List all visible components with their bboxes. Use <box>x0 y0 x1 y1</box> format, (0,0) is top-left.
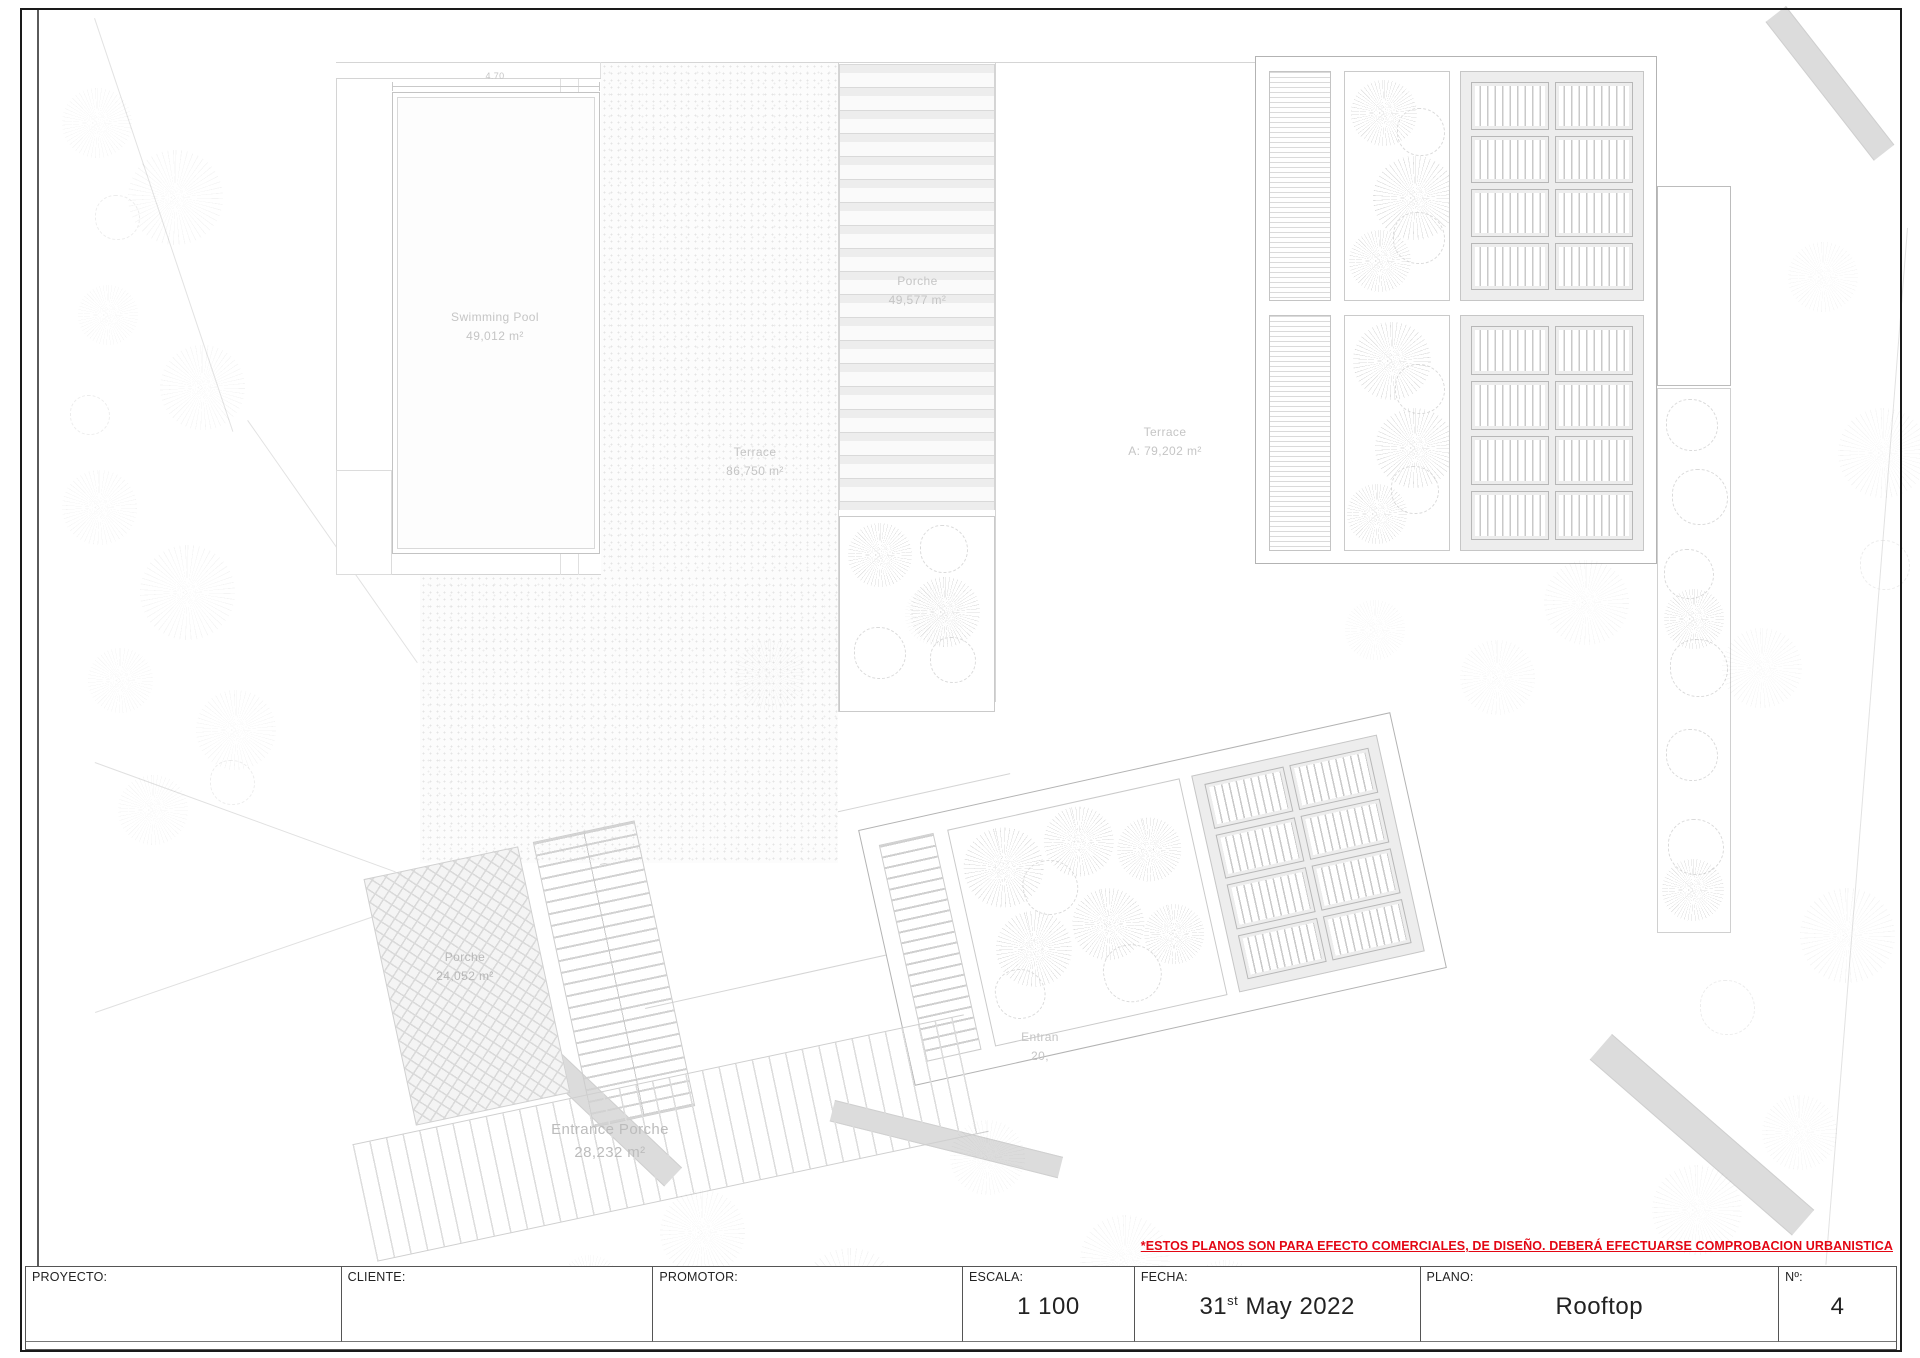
fecha-value: 31st May 2022 <box>1135 1293 1420 1321</box>
proyecto-label: PROYECTO: <box>32 1270 107 1284</box>
cliente-label: CLIENTE: <box>348 1270 406 1284</box>
titleblock-cell-plano: PLANO: Rooftop <box>1421 1267 1780 1342</box>
porche-entry-label: Porche24,052 m² <box>385 948 545 985</box>
terrace-a-label: TerraceA: 79,202 m² <box>1080 423 1250 460</box>
titleblock-cell-numero: Nº: 4 <box>1779 1267 1896 1342</box>
sheet-inner-border <box>37 10 39 1266</box>
entrance-partial-label: Entran20, <box>1005 1028 1075 1065</box>
swimming-pool-label: Swimming Pool49,012 m² <box>395 308 595 345</box>
numero-value: 4 <box>1779 1293 1896 1321</box>
porche-label: Porche49,577 m² <box>845 272 990 309</box>
escala-label: ESCALA: <box>969 1270 1023 1284</box>
titleblock-cell-cliente: CLIENTE: <box>342 1267 654 1342</box>
numero-label: Nº: <box>1785 1270 1803 1284</box>
fecha-label: FECHA: <box>1141 1270 1188 1284</box>
pool-dimension-label: 4.70 <box>440 70 550 84</box>
escala-value: 1 100 <box>963 1293 1134 1321</box>
terrace-label: Terrace86,750 m² <box>660 443 850 480</box>
plan-sheet: 4.70 Swimming Pool49,012 m² Terrace86,75… <box>0 0 1920 1358</box>
entrance-porche-label: Entrance Porche28,232 m² <box>500 1118 720 1165</box>
disclaimer-note: *ESTOS PLANOS SON PARA EFECTO COMERCIALE… <box>1141 1239 1893 1253</box>
plano-label: PLANO: <box>1427 1270 1474 1284</box>
promotor-label: PROMOTOR: <box>659 1270 738 1284</box>
plano-value: Rooftop <box>1421 1293 1779 1321</box>
titleblock-cell-escala: ESCALA: 1 100 <box>963 1267 1135 1342</box>
titleblock-cell-promotor: PROMOTOR: <box>653 1267 963 1342</box>
title-block: PROYECTO: CLIENTE: PROMOTOR: ESCALA: 1 1… <box>25 1266 1897 1350</box>
sheet-border <box>20 8 1902 1352</box>
titleblock-cell-proyecto: PROYECTO: <box>26 1267 342 1342</box>
titleblock-cell-fecha: FECHA: 31st May 2022 <box>1135 1267 1421 1342</box>
